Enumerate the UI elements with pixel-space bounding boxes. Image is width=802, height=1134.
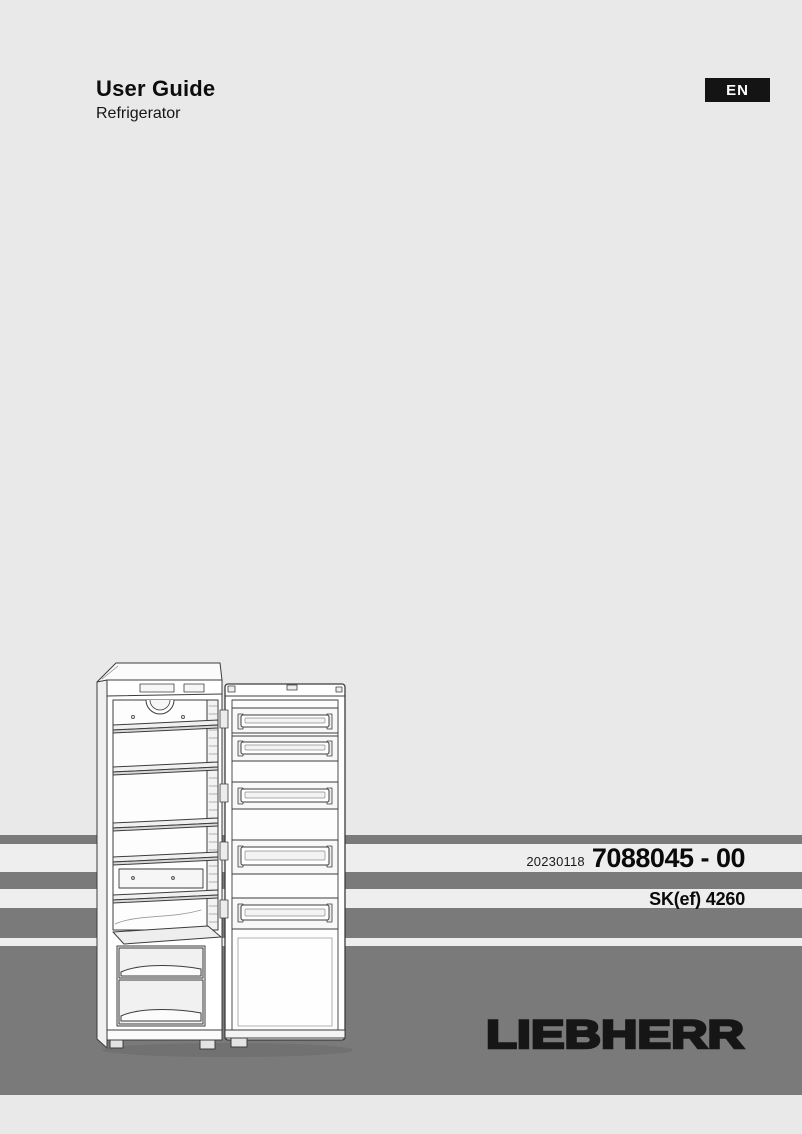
language-badge: EN bbox=[705, 78, 770, 102]
page-subtitle: Refrigerator bbox=[96, 105, 180, 123]
model-number: SK(ef) 4260 bbox=[649, 889, 745, 908]
liebherr-logo-text: LIEBHERR bbox=[486, 1013, 744, 1056]
document-number: 7088045 - 00 bbox=[592, 845, 745, 872]
brand-logo: LIEBHERR bbox=[483, 1012, 747, 1056]
date-code: 20230118 bbox=[526, 854, 584, 869]
refrigerator-illustration bbox=[88, 658, 352, 1062]
language-badge-label: EN bbox=[726, 82, 749, 99]
page-title: User Guide bbox=[96, 76, 215, 102]
document-number-row: 20230118 7088045 - 00 bbox=[526, 843, 745, 872]
liebherr-logo-icon: LIEBHERR bbox=[483, 1012, 747, 1056]
user-guide-cover-page: { "header": { "title": "User Guide", "su… bbox=[0, 0, 802, 1134]
